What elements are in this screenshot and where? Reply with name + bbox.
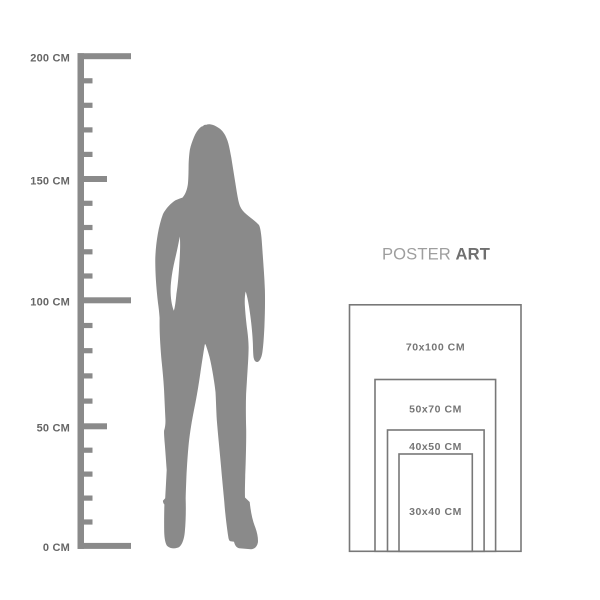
svg-text:0 CM: 0 CM <box>43 542 70 554</box>
svg-text:POSTER ART: POSTER ART <box>382 244 490 263</box>
svg-text:40x50 CM: 40x50 CM <box>409 441 462 453</box>
svg-text:200 CM: 200 CM <box>30 53 70 65</box>
svg-text:50x70 CM: 50x70 CM <box>409 404 462 416</box>
svg-text:30x40 CM: 30x40 CM <box>409 506 462 518</box>
svg-text:150 CM: 150 CM <box>30 175 70 187</box>
svg-text:100 CM: 100 CM <box>30 297 70 309</box>
svg-text:50 CM: 50 CM <box>37 423 70 435</box>
svg-text:70x100 CM: 70x100 CM <box>406 341 465 353</box>
